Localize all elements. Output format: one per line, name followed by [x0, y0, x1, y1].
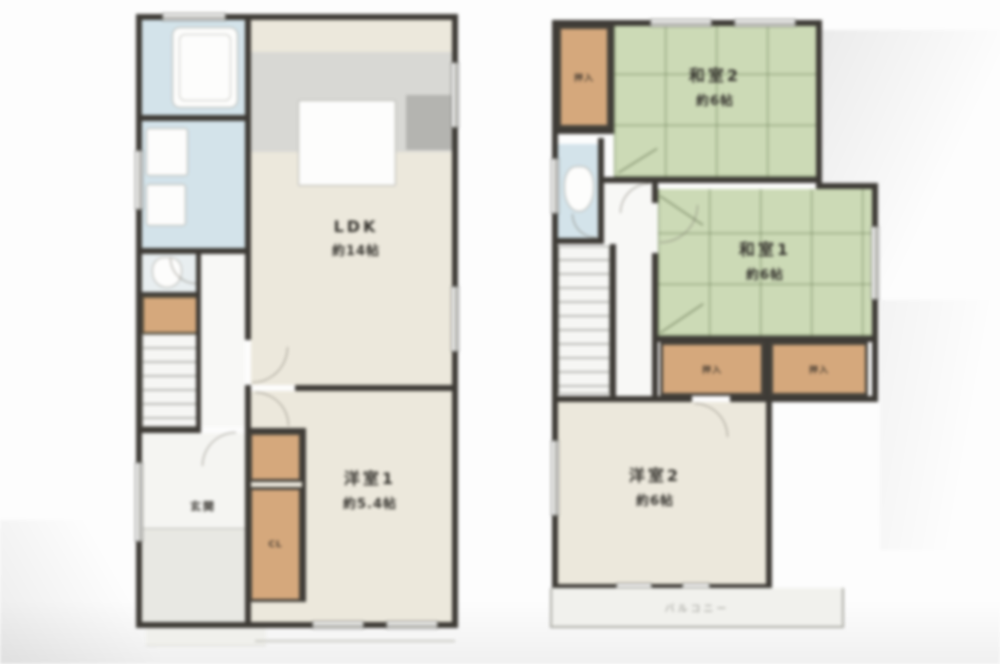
kitchen-island-counter [298, 100, 396, 186]
toilet2-bowl [564, 166, 594, 212]
wall-segment [136, 427, 201, 433]
wall-segment [766, 396, 772, 590]
stairs2-steps [558, 246, 610, 394]
wall-segment [816, 20, 822, 189]
wall-segment [766, 396, 878, 402]
room-bedroom1-size: 約5.4帖 [343, 493, 397, 512]
vanity-sink [146, 128, 188, 176]
window [551, 440, 559, 516]
window [734, 19, 796, 27]
wall-segment [136, 115, 251, 121]
window [871, 226, 879, 300]
wall-segment [552, 238, 604, 244]
window [451, 62, 459, 128]
room-tatami2-name: 和室2 [689, 62, 741, 86]
room-bedroom2-size: 約6帖 [636, 490, 674, 509]
stairs1-steps [142, 334, 198, 427]
room-tatami2: 和室2 約6帖 [630, 48, 800, 123]
balcony-label: バルコニー [665, 600, 730, 615]
room-tatami1-size: 約6帖 [746, 264, 784, 283]
room-ldk: LDK 約14帖 [271, 198, 441, 278]
wall-segment [604, 177, 822, 183]
closet2-b: 押入 [770, 342, 868, 396]
room-tatami1-name: 和室1 [739, 236, 791, 260]
entrance-label-box: 玄関 [165, 492, 241, 520]
wall-segment [652, 253, 658, 402]
washing-machine [146, 184, 186, 226]
wall-segment [245, 14, 251, 340]
porch-step [146, 628, 266, 646]
wall-segment [552, 128, 614, 134]
room-bedroom2: 洋室2 約6帖 [575, 445, 735, 525]
entrance-label: 玄関 [190, 498, 216, 514]
room-bedroom1: 洋室1 約5.4帖 [295, 448, 445, 528]
wall-segment [136, 292, 201, 296]
window [312, 621, 364, 629]
bathtub-inner [179, 34, 231, 101]
balcony: バルコニー [550, 588, 844, 628]
wall-segment [610, 244, 616, 402]
kitchen-stove [406, 95, 452, 150]
floorplan-scene: CL LDK 約14帖 洋室1 約5.4帖 玄関 [0, 0, 1000, 664]
room-bedroom2-name: 洋室2 [629, 462, 681, 486]
wall-segment [136, 248, 251, 254]
window [451, 286, 459, 352]
room-ldk-name: LDK [334, 217, 379, 236]
window [135, 150, 143, 210]
room-tatami1: 和室1 約6帖 [680, 222, 850, 297]
closet2-a-label: 押入 [702, 363, 722, 376]
closet2-a: 押入 [660, 342, 764, 396]
window [162, 13, 226, 21]
wall-segment [295, 385, 458, 391]
room-ldk-size: 約14帖 [332, 240, 380, 259]
wall-segment [816, 183, 878, 189]
closet2-b-label: 押入 [809, 363, 829, 376]
wall-segment [196, 248, 201, 430]
front-door [135, 462, 143, 542]
wall-segment [598, 138, 604, 244]
closet1-label: CL [268, 540, 282, 550]
wall-segment [730, 396, 772, 402]
window [650, 19, 712, 27]
wall-segment [552, 396, 692, 402]
closet2-top: 押入 [558, 26, 610, 128]
entrance-tataki-floor [142, 528, 245, 622]
room-tatami2-size: 約6帖 [696, 90, 734, 109]
room-bedroom1-name: 洋室1 [344, 465, 396, 489]
wall-segment [652, 183, 658, 203]
window [551, 158, 559, 214]
page-shadow-right [880, 300, 1000, 550]
closet2-top-label: 押入 [574, 71, 594, 84]
window [386, 621, 438, 629]
stairs1-landing [142, 296, 198, 334]
corridor-floor [201, 248, 245, 427]
terrace-line [255, 640, 455, 642]
